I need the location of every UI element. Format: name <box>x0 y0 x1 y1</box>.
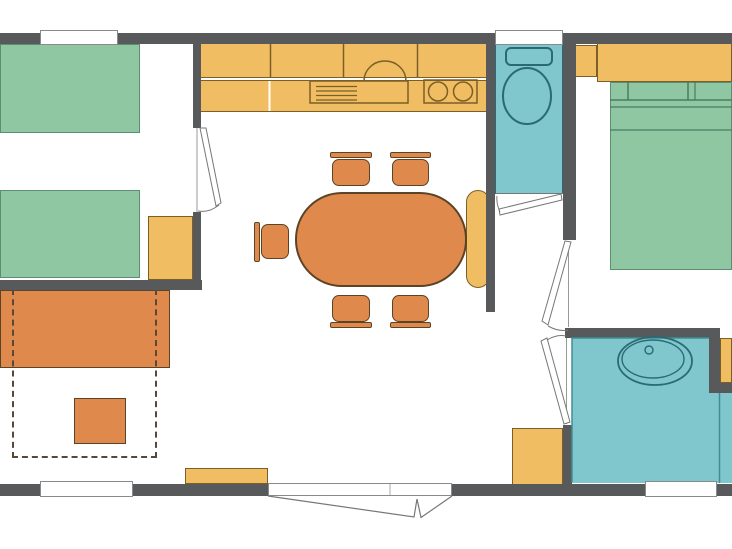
floor-plan <box>0 0 732 549</box>
entry-door-opening <box>268 483 452 496</box>
entry-door-left-leaf <box>268 496 417 517</box>
master-bedroom-door-leaf <box>542 241 571 325</box>
twin-bed-bottom <box>0 190 140 278</box>
wall-bathroom-corner-h <box>717 383 732 393</box>
chair-bottom-1-seat <box>332 295 370 322</box>
dining-table <box>295 192 467 287</box>
window-living <box>40 481 133 497</box>
kitchen-counter <box>200 80 487 112</box>
wall-wc-right <box>563 43 576 240</box>
chair-left-seat <box>261 224 289 259</box>
chair-top-1-back <box>330 152 372 158</box>
double-bed <box>610 82 732 270</box>
bedroom-overhead-cabinet <box>597 43 732 82</box>
twin-bedroom-door-leaf <box>200 128 221 206</box>
wc-floor <box>495 43 563 194</box>
window-twin-bedroom <box>40 30 118 45</box>
wall-bedroom-bottom <box>565 328 717 338</box>
bathroom-cabinet <box>512 428 563 485</box>
chair-bottom-1-back <box>330 322 372 328</box>
window-bathroom <box>645 481 717 497</box>
twin-bed-top <box>0 44 140 133</box>
chair-left-back <box>254 222 260 262</box>
chair-top-1-seat <box>332 159 370 186</box>
wall-bathroom-stub <box>563 425 572 485</box>
bathroom-floor-main <box>572 338 709 483</box>
wall-twin-bedroom-bottom <box>0 280 202 290</box>
wc-door-arc <box>497 196 500 212</box>
chair-bottom-2-seat <box>392 295 429 322</box>
chair-top-2-seat <box>392 159 429 186</box>
chair-top-2-back <box>390 152 431 158</box>
kitchen-upper-cabinets <box>200 43 487 78</box>
entry-door-right-leaf <box>417 496 452 518</box>
twin-bedroom-door-arc <box>198 205 219 211</box>
window-wc <box>495 30 563 45</box>
wall-twin-bedroom-upper <box>193 43 201 128</box>
wc-door-leaf <box>499 194 562 215</box>
bathroom-door-leaf <box>541 338 570 424</box>
wall-twin-bedroom-lower <box>193 212 201 290</box>
wall-wc-left <box>486 43 495 312</box>
chair-bottom-2-back <box>390 322 431 328</box>
nightstand <box>148 216 193 280</box>
bathroom-floor-right <box>709 393 732 483</box>
sofa-bed-extension <box>12 289 157 458</box>
corner-wardrobe <box>720 338 732 383</box>
entry-shelf <box>185 468 268 484</box>
bathroom-door-arc <box>547 336 566 341</box>
